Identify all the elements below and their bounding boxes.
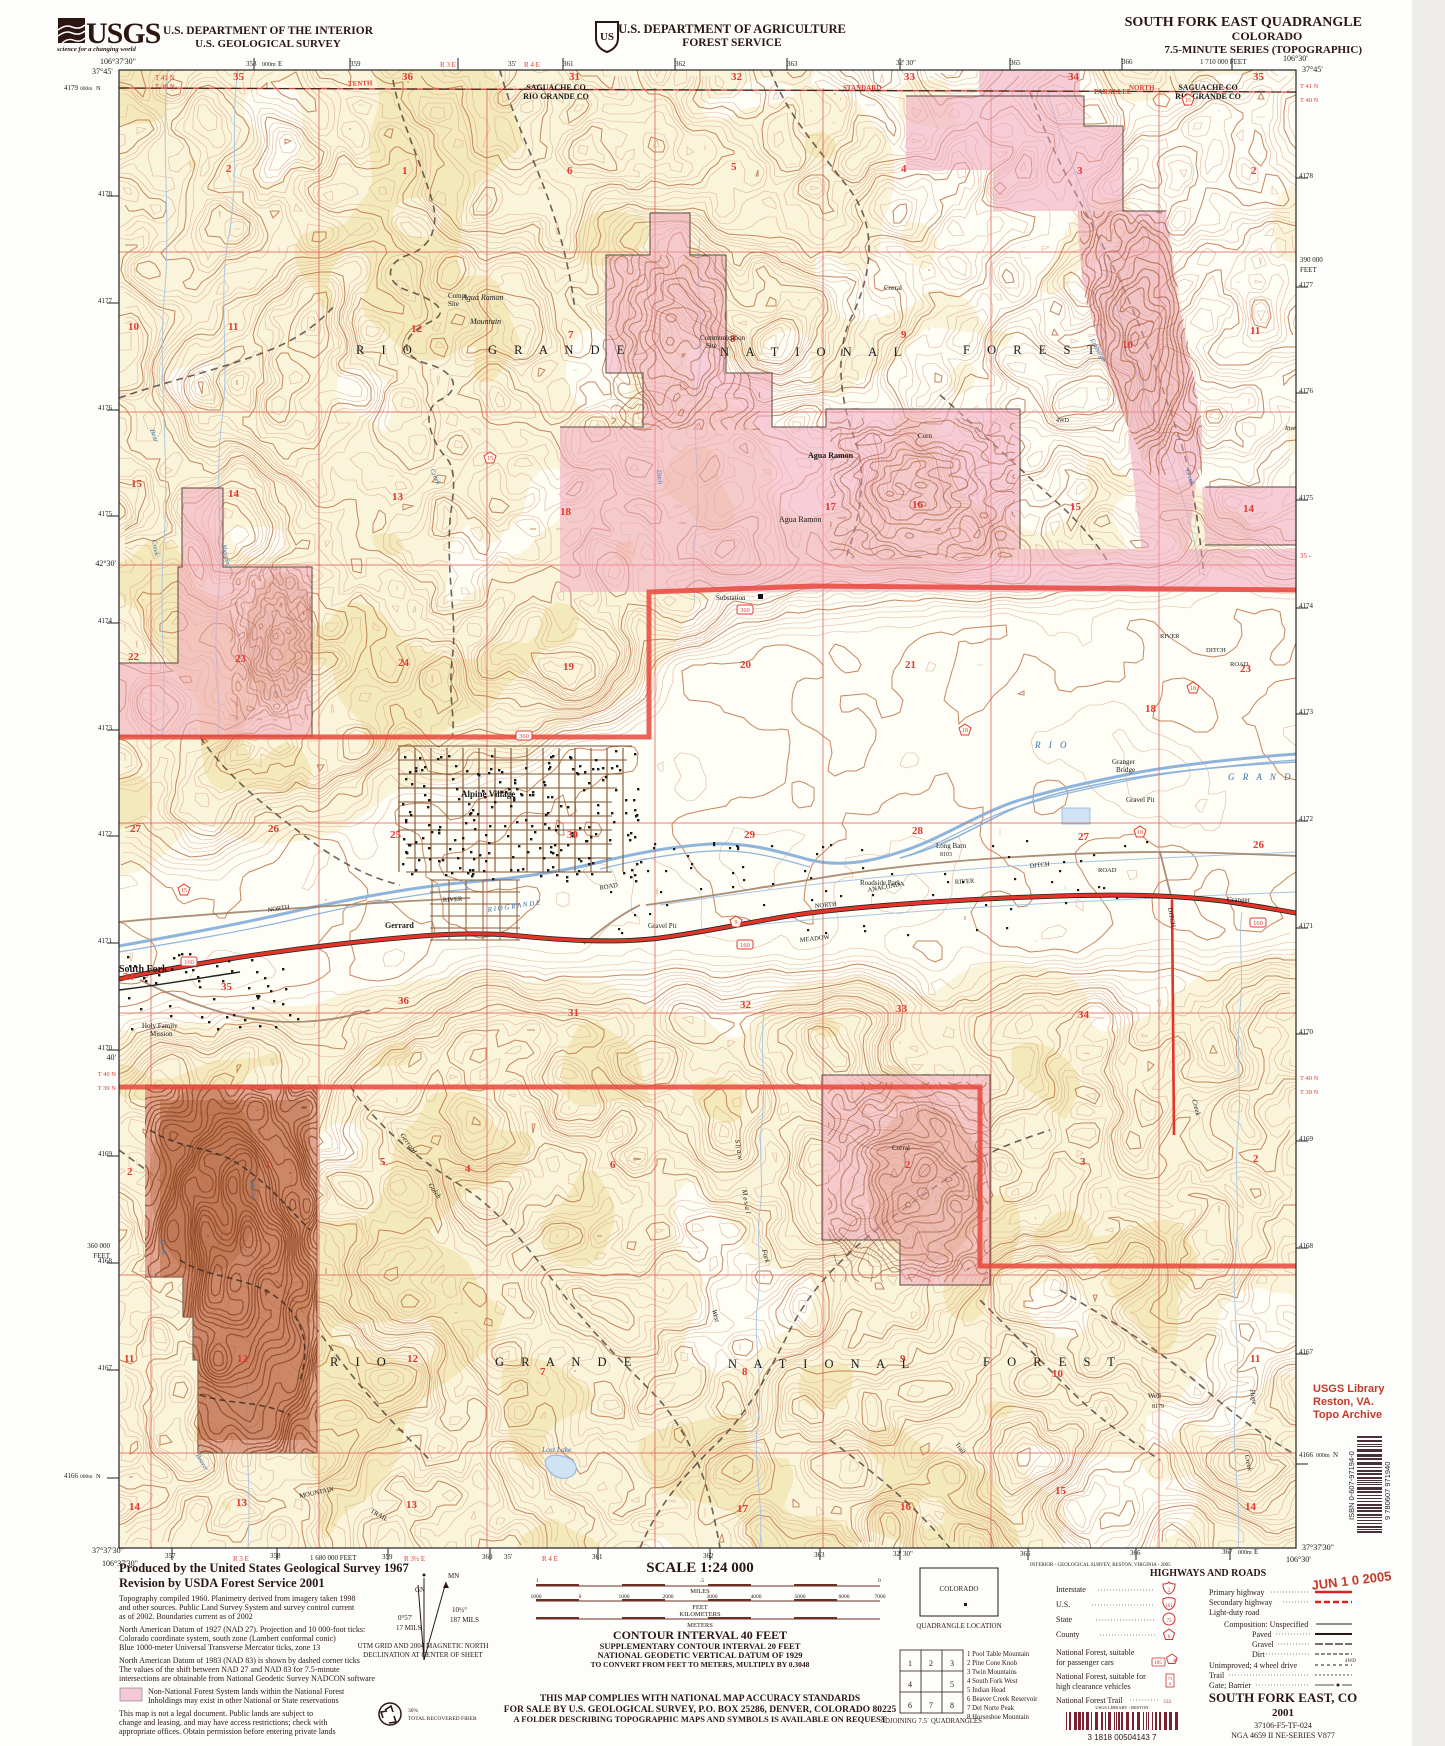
- svg-text:4175: 4175: [1299, 494, 1314, 502]
- svg-text:3 1818 00504143 7: 3 1818 00504143 7: [1088, 1733, 1158, 1742]
- svg-text:National Forest, suitable for: National Forest, suitable for: [1056, 1672, 1146, 1681]
- svg-text:25: 25: [390, 829, 402, 841]
- svg-text:DITCH: DITCH: [1206, 647, 1226, 654]
- svg-text:MN: MN: [448, 1572, 459, 1580]
- svg-text:Topo Archive: Topo Archive: [1313, 1409, 1382, 1421]
- svg-text:11: 11: [124, 1353, 134, 1365]
- svg-text:N: N: [1333, 1451, 1338, 1459]
- svg-text:RIVER: RIVER: [1160, 633, 1180, 640]
- svg-text:2: 2: [127, 1166, 133, 1178]
- svg-text:Reston, VA.: Reston, VA.: [1313, 1396, 1374, 1408]
- svg-text:ADJOINING 7.5´ QUADRANGLES: ADJOINING 7.5´ QUADRANGLES: [880, 1718, 982, 1725]
- svg-text:0°57': 0°57': [398, 1614, 413, 1622]
- svg-text:105: 105: [1154, 1661, 1162, 1666]
- svg-text:360: 360: [482, 1553, 493, 1561]
- svg-text:National Forest Trail: National Forest Trail: [1056, 1696, 1123, 1705]
- svg-text:5000: 5000: [795, 1594, 806, 1600]
- svg-text:48: 48: [1173, 1659, 1179, 1664]
- svg-text:R I O: R I O: [330, 1355, 393, 1369]
- svg-text:19: 19: [563, 661, 575, 673]
- svg-text:11: 11: [1250, 325, 1260, 337]
- svg-text:12: 12: [411, 323, 423, 335]
- svg-text:Mountain: Mountain: [469, 317, 501, 326]
- svg-text:N A T I O N A L: N A T I O N A L: [720, 345, 908, 359]
- svg-text:E: E: [278, 60, 282, 68]
- svg-text:Secondary highway: Secondary highway: [1209, 1598, 1272, 1607]
- svg-text:35': 35': [508, 60, 516, 68]
- svg-text:TOTAL RECOVERED FIBER: TOTAL RECOVERED FIBER: [408, 1716, 477, 1722]
- svg-text:QUADRANGLE LOCATION: QUADRANGLE LOCATION: [916, 1622, 1001, 1630]
- svg-text:358: 358: [246, 60, 257, 68]
- svg-text:4171: 4171: [1299, 922, 1314, 930]
- svg-text:10½°: 10½°: [452, 1606, 467, 1614]
- svg-text:Inholdings may exist in other: Inholdings may exist in other National o…: [148, 1696, 339, 1705]
- svg-text:29: 29: [744, 829, 756, 841]
- svg-text:390 000: 390 000: [1300, 256, 1323, 264]
- svg-text:FEET: FEET: [692, 1604, 708, 1611]
- svg-text:4000: 4000: [751, 1594, 762, 1600]
- svg-text:E: E: [1254, 1548, 1258, 1556]
- svg-text:CONTOUR INTERVAL 40 FEET: CONTOUR INTERVAL 40 FEET: [613, 1628, 787, 1642]
- svg-text:3: 3: [1077, 165, 1083, 177]
- svg-text:HIGHWAYS AND ROADS: HIGHWAYS AND ROADS: [1150, 1568, 1267, 1579]
- svg-text:4: 4: [908, 1680, 912, 1689]
- svg-text:17: 17: [825, 501, 837, 513]
- svg-text:Gravel Pit: Gravel Pit: [648, 922, 677, 930]
- svg-text:Lost Lake: Lost Lake: [541, 1445, 572, 1454]
- svg-text:Gerrard: Gerrard: [385, 921, 414, 930]
- svg-text:9: 9: [901, 329, 907, 341]
- svg-text:science for a changing world: science for a changing world: [56, 46, 136, 53]
- svg-text:4172: 4172: [98, 830, 113, 838]
- svg-text:7: 7: [929, 1701, 933, 1710]
- svg-text:10: 10: [1052, 1368, 1064, 1380]
- svg-text:4179: 4179: [64, 84, 79, 92]
- svg-text:35: 35: [1253, 71, 1265, 83]
- svg-text:11: 11: [228, 321, 238, 333]
- svg-text:4167: 4167: [1299, 1348, 1314, 1356]
- svg-text:32' 30": 32' 30": [896, 59, 916, 67]
- svg-text:Agua Ramon: Agua Ramon: [808, 451, 854, 460]
- svg-text:COLORADO: COLORADO: [1232, 29, 1303, 43]
- svg-text:12: 12: [407, 1353, 419, 1365]
- svg-text:26: 26: [268, 823, 280, 835]
- svg-text:ROAD: ROAD: [1230, 661, 1249, 668]
- svg-text:U.S. DEPARTMENT OF AGRICULTURE: U.S. DEPARTMENT OF AGRICULTURE: [618, 22, 846, 36]
- svg-text:change and leasing, and may ha: change and leasing, and may have access …: [119, 1718, 327, 1727]
- svg-text:000m: 000m: [1238, 1550, 1252, 1556]
- svg-text:1 710 000 FEET: 1 710 000 FEET: [1200, 58, 1247, 66]
- svg-text:27: 27: [130, 823, 142, 835]
- svg-text:18: 18: [962, 728, 968, 734]
- svg-text:COLORADO: COLORADO: [940, 1585, 979, 1593]
- svg-text:NATIONAL GEODETIC VERTICAL DAT: NATIONAL GEODETIC VERTICAL DATUM OF 1929: [597, 1650, 802, 1660]
- svg-text:11: 11: [1250, 1353, 1260, 1365]
- svg-text:G R A N D E: G R A N D E: [488, 343, 631, 357]
- svg-text:4175: 4175: [98, 510, 113, 518]
- svg-text:37°45': 37°45': [1302, 65, 1323, 74]
- svg-text:32' 30": 32' 30": [893, 1550, 913, 1558]
- svg-text:15: 15: [487, 456, 493, 462]
- svg-text:USGS LIBRARY - RESTON: USGS LIBRARY - RESTON: [1095, 1705, 1149, 1710]
- svg-text:2000: 2000: [663, 1594, 674, 1600]
- svg-text:Topography compiled 1960. Pla: Topography compiled 1960. Planimetry der…: [119, 1594, 356, 1603]
- svg-text:Granger: Granger: [1227, 896, 1251, 904]
- svg-text:365: 365: [1020, 1550, 1031, 1558]
- svg-text:332: 332: [1163, 1699, 1172, 1705]
- svg-text:4177: 4177: [1299, 281, 1314, 289]
- svg-text:N: N: [96, 85, 101, 92]
- svg-text:14: 14: [228, 488, 240, 500]
- svg-text:2: 2: [929, 1659, 933, 1668]
- svg-text:Holy Family: Holy Family: [142, 1022, 178, 1030]
- svg-text:359: 359: [350, 60, 361, 68]
- svg-text:FEET: FEET: [1300, 266, 1317, 274]
- svg-text:1 Pool Table Mountain: 1 Pool Table Mountain: [967, 1651, 1030, 1658]
- svg-text:Dirt: Dirt: [1252, 1650, 1266, 1659]
- svg-text:high clearance vehicles: high clearance vehicles: [1056, 1682, 1131, 1691]
- svg-text:Substation: Substation: [716, 594, 746, 602]
- svg-text:Gravel Pit: Gravel Pit: [1126, 796, 1155, 804]
- svg-text:N A T I O N A L: N A T I O N A L: [728, 1357, 916, 1371]
- svg-text:2: 2: [1251, 165, 1257, 177]
- svg-text:SOUTH FORK EAST, CO: SOUTH FORK EAST, CO: [1209, 1690, 1358, 1705]
- svg-text:365: 365: [1010, 59, 1021, 67]
- svg-text:County: County: [1056, 1630, 1080, 1639]
- svg-text:36: 36: [398, 995, 410, 1007]
- svg-text:42°30': 42°30': [95, 559, 116, 568]
- svg-text:360: 360: [740, 607, 750, 614]
- svg-text:T 40 N: T 40 N: [1300, 1075, 1319, 1082]
- svg-text:This map is not a legal docume: This map is not a legal document. Public…: [119, 1709, 313, 1718]
- svg-text:000m: 000m: [80, 86, 93, 92]
- svg-text:R I O: R I O: [1034, 740, 1070, 750]
- svg-text:ROAD: ROAD: [1098, 867, 1117, 874]
- svg-text:R 4 E: R 4 E: [542, 1555, 558, 1563]
- svg-text:4170: 4170: [98, 1044, 113, 1052]
- svg-text:The values of the shift betwee: The values of the shift between NAD 27 a…: [119, 1665, 340, 1674]
- svg-text:Alpine Village: Alpine Village: [461, 789, 515, 799]
- svg-text:7000: 7000: [875, 1594, 886, 1600]
- svg-text:Well: Well: [1148, 1392, 1161, 1400]
- svg-text:Corn: Corn: [918, 432, 933, 440]
- svg-text:9: 9: [735, 920, 738, 926]
- svg-text:35': 35': [504, 1553, 512, 1561]
- svg-text:for passenger cars: for passenger cars: [1056, 1658, 1114, 1667]
- svg-text:4166: 4166: [64, 1472, 79, 1480]
- svg-text:13: 13: [236, 1497, 248, 1509]
- svg-text:GN: GN: [415, 1586, 425, 1594]
- svg-text:5 Indian Head: 5 Indian Head: [967, 1687, 1006, 1694]
- svg-text:18: 18: [1145, 703, 1157, 715]
- svg-text:4178: 4178: [1299, 172, 1314, 180]
- svg-text:RIVER: RIVER: [955, 878, 976, 886]
- svg-text:DECLINATION AT CENTER OF SHEET: DECLINATION AT CENTER OF SHEET: [363, 1651, 483, 1659]
- svg-text:Produced by the United States: Produced by the United States Geological…: [119, 1561, 409, 1575]
- svg-text:T 40 N: T 40 N: [1300, 97, 1319, 104]
- svg-text:.5: .5: [700, 1578, 704, 1584]
- svg-text:NORTH: NORTH: [1129, 84, 1155, 92]
- svg-text:2: 2: [226, 163, 232, 175]
- svg-text:ISBN 0-607-97194-0: ISBN 0-607-97194-0: [1347, 1451, 1356, 1520]
- svg-text:R 3 E: R 3 E: [440, 61, 456, 69]
- svg-text:15: 15: [131, 478, 143, 490]
- svg-text:RIO GRANDE CO: RIO GRANDE CO: [523, 92, 589, 101]
- svg-text:0: 0: [579, 1594, 582, 1600]
- svg-text:14: 14: [1243, 503, 1255, 515]
- svg-text:F O R E S T: F O R E S T: [983, 1355, 1122, 1369]
- svg-text:Site: Site: [706, 342, 717, 350]
- svg-text:N: N: [96, 1473, 101, 1480]
- svg-text:FOREST SERVICE: FOREST SERVICE: [682, 37, 782, 49]
- svg-text:South Fork: South Fork: [119, 964, 168, 975]
- svg-text:8103: 8103: [940, 852, 952, 858]
- svg-text:35 -: 35 -: [1300, 552, 1312, 560]
- svg-text:6: 6: [610, 1159, 616, 1171]
- svg-text:4168: 4168: [1299, 1242, 1314, 1250]
- svg-text:4WD: 4WD: [1056, 418, 1070, 424]
- svg-text:2001: 2001: [1272, 1707, 1294, 1719]
- svg-text:000m: 000m: [1316, 1453, 1330, 1459]
- svg-text:SOUTH FORK EAST QUADRANGLE: SOUTH FORK EAST QUADRANGLE: [1125, 15, 1362, 30]
- svg-text:363: 363: [787, 60, 798, 68]
- svg-text:6: 6: [908, 1701, 912, 1710]
- svg-text:15: 15: [181, 888, 187, 894]
- svg-text:TO CONVERT FROM FEET TO METERS: TO CONVERT FROM FEET TO METERS, MULTIPLY…: [591, 1660, 810, 1669]
- svg-text:KILOMETERS: KILOMETERS: [679, 1611, 721, 1618]
- svg-text:37°37'30": 37°37'30": [1302, 1543, 1334, 1552]
- svg-text:362: 362: [703, 1552, 714, 1560]
- svg-text:27: 27: [1078, 831, 1090, 843]
- svg-text:106°37'30": 106°37'30": [100, 57, 136, 66]
- svg-text:8179: 8179: [1152, 1404, 1164, 1410]
- svg-text:Corral: Corral: [884, 284, 902, 292]
- svg-text:Granger: Granger: [1112, 758, 1136, 766]
- svg-text:10: 10: [128, 321, 140, 333]
- svg-text:28: 28: [912, 825, 924, 837]
- svg-text:T 40 N: T 40 N: [155, 83, 175, 91]
- svg-text:6 Beaver Creek Reservoir: 6 Beaver Creek Reservoir: [967, 1696, 1038, 1703]
- svg-text:14: 14: [1245, 1501, 1257, 1513]
- svg-text:4173: 4173: [98, 724, 113, 732]
- svg-text:15: 15: [1070, 501, 1082, 513]
- svg-text:2 Pine Cone Knob: 2 Pine Cone Knob: [967, 1660, 1018, 1667]
- svg-text:1: 1: [908, 1659, 912, 1668]
- svg-text:23: 23: [235, 653, 247, 665]
- svg-text:160: 160: [184, 959, 194, 966]
- svg-text:4: 4: [465, 1163, 471, 1175]
- svg-text:Composition: Unspecified: Composition: Unspecified: [1224, 1620, 1308, 1629]
- svg-text:A FOLDER DESCRIBING TOPOGRAPHI: A FOLDER DESCRIBING TOPOGRAPHIC MAPS AND…: [514, 1714, 887, 1724]
- svg-text:20: 20: [740, 659, 752, 671]
- svg-text:26: 26: [1253, 839, 1265, 851]
- svg-text:UTM GRID AND 2004 MAGNETIC NOR: UTM GRID AND 2004 MAGNETIC NORTH: [358, 1642, 489, 1650]
- svg-text:101: 101: [1165, 1604, 1173, 1609]
- svg-text:366: 366: [1122, 58, 1133, 66]
- svg-text:160: 160: [1253, 920, 1263, 927]
- svg-text:4 South Fork West: 4 South Fork West: [967, 1678, 1018, 1685]
- svg-text:National Forest, suitable: National Forest, suitable: [1056, 1648, 1135, 1657]
- svg-text:0: 0: [878, 1578, 881, 1584]
- svg-text:16: 16: [900, 1501, 912, 1513]
- svg-text:4172: 4172: [1299, 815, 1314, 823]
- svg-text:357: 357: [165, 1552, 176, 1560]
- svg-text:4177: 4177: [98, 297, 113, 305]
- svg-text:4167: 4167: [98, 1364, 113, 1372]
- svg-text:34: 34: [1068, 71, 1080, 83]
- svg-text:as of 2002. Boundaries curren: as of 2002. Boundaries current as of 200…: [119, 1612, 253, 1621]
- svg-text:2: 2: [905, 1159, 911, 1171]
- svg-text:362: 362: [675, 60, 686, 68]
- svg-text:PARALLEL: PARALLEL: [1094, 88, 1132, 96]
- svg-text:Gravel: Gravel: [1252, 1640, 1275, 1649]
- svg-text:and other sources. Public Lan: and other sources. Public Land Survey Sy…: [119, 1603, 355, 1612]
- svg-text:Paved: Paved: [1252, 1630, 1272, 1639]
- svg-text:Trail: Trail: [1209, 1671, 1225, 1680]
- svg-text:1000: 1000: [619, 1594, 630, 1600]
- svg-text:5: 5: [380, 1156, 386, 1168]
- svg-text:37°45': 37°45': [92, 67, 113, 76]
- svg-text:4176: 4176: [98, 404, 113, 412]
- svg-text:Agua Ramon: Agua Ramon: [779, 515, 821, 524]
- svg-text:36: 36: [402, 71, 414, 83]
- svg-text:North American Datum of 1927 (: North American Datum of 1927 (NAD 27). P…: [119, 1625, 365, 1634]
- svg-text:16: 16: [912, 499, 924, 511]
- svg-text:THIS MAP COMPLIES WITH NATIONA: THIS MAP COMPLIES WITH NATIONAL MAP ACCU…: [540, 1694, 860, 1704]
- svg-text:3: 3: [950, 1659, 954, 1668]
- svg-text:STANDARD: STANDARD: [843, 84, 881, 92]
- svg-text:Site: Site: [448, 300, 459, 308]
- svg-text:7.5-MINUTE SERIES (TOPOGRAPHIC: 7.5-MINUTE SERIES (TOPOGRAPHIC): [1164, 44, 1362, 56]
- svg-text:R I O: R I O: [356, 343, 419, 357]
- svg-text:160: 160: [740, 942, 750, 949]
- svg-text:4173: 4173: [1299, 708, 1314, 716]
- svg-text:7 Del Norte Peak: 7 Del Norte Peak: [967, 1705, 1015, 1712]
- svg-text:4174: 4174: [1299, 602, 1314, 610]
- svg-text:15: 15: [1185, 98, 1191, 104]
- svg-text:USGS Library: USGS Library: [1313, 1383, 1385, 1395]
- svg-text:RIVER: RIVER: [443, 896, 464, 904]
- svg-text:F O R E S T: F O R E S T: [963, 343, 1102, 357]
- svg-text:35: 35: [221, 981, 233, 993]
- svg-text:6000: 6000: [839, 1594, 850, 1600]
- svg-text:3000: 3000: [707, 1594, 718, 1600]
- svg-text:18: 18: [1190, 686, 1196, 692]
- svg-text:33: 33: [896, 1003, 908, 1015]
- svg-text:4174: 4174: [98, 617, 113, 625]
- svg-text:6: 6: [567, 165, 573, 177]
- svg-text:1: 1: [536, 1578, 539, 1584]
- svg-text:40': 40': [107, 1053, 117, 1062]
- svg-text:3 Twin Mountains: 3 Twin Mountains: [967, 1669, 1017, 1676]
- svg-text:32: 32: [740, 999, 752, 1011]
- svg-text:G R A N D E: G R A N D E: [495, 1355, 638, 1369]
- svg-text:5: 5: [950, 1680, 954, 1689]
- svg-text:Unimproved; 4 wheel drive: Unimproved; 4 wheel drive: [1209, 1661, 1298, 1670]
- svg-text:Light-duty road: Light-duty road: [1209, 1608, 1259, 1617]
- svg-text:17 MILS: 17 MILS: [396, 1624, 422, 1632]
- svg-text:9 780607 971940: 9 780607 971940: [1383, 1462, 1392, 1520]
- svg-text:U.S. DEPARTMENT OF THE INTERIO: U.S. DEPARTMENT OF THE INTERIOR: [163, 25, 374, 37]
- svg-text:1000: 1000: [531, 1594, 542, 1600]
- svg-text:TENTH: TENTH: [348, 79, 373, 88]
- svg-text:NGA 4659 II NE-SERIES V877: NGA 4659 II NE-SERIES V877: [1231, 1731, 1335, 1740]
- svg-text:4: 4: [901, 163, 907, 175]
- svg-text:T 39 N: T 39 N: [1300, 1089, 1319, 1096]
- svg-text:34: 34: [1078, 1009, 1090, 1021]
- svg-text:U.S.: U.S.: [1056, 1600, 1070, 1609]
- svg-text:T 40 N: T 40 N: [98, 1071, 117, 1078]
- svg-text:21: 21: [905, 659, 916, 671]
- svg-text:31: 31: [569, 71, 580, 83]
- svg-text:17: 17: [737, 1503, 749, 1515]
- svg-text:Corral: Corral: [892, 1144, 910, 1152]
- svg-text:Non-National Forest System lan: Non-National Forest System lands within …: [148, 1687, 345, 1696]
- svg-text:intersections are obtainable f: intersections are obtainable from Nation…: [119, 1674, 375, 1683]
- svg-text:4169: 4169: [98, 1150, 113, 1158]
- svg-text:Mission: Mission: [150, 1030, 173, 1038]
- svg-text:U.S. GEOLOGICAL SURVEY: U.S. GEOLOGICAL SURVEY: [195, 38, 341, 50]
- svg-text:State: State: [1056, 1615, 1072, 1624]
- svg-text:4WD: 4WD: [1345, 1659, 1356, 1664]
- svg-text:appropriate offices. Obtain p: appropriate offices. Obtain permission b…: [119, 1727, 336, 1736]
- svg-text:T 41 N: T 41 N: [155, 74, 175, 82]
- svg-text:4169: 4169: [1299, 1135, 1314, 1143]
- svg-text:SAGUACHE CO: SAGUACHE CO: [1178, 83, 1237, 92]
- svg-text:FEET: FEET: [93, 1252, 110, 1260]
- svg-text:SAGUACHE CO: SAGUACHE CO: [526, 83, 585, 92]
- svg-text:10: 10: [1122, 339, 1134, 351]
- svg-text:37°37'30": 37°37'30": [92, 1546, 124, 1555]
- svg-text:187 MILS: 187 MILS: [450, 1616, 479, 1624]
- svg-text:Agua Ramon: Agua Ramon: [461, 293, 504, 302]
- svg-text:360 000: 360 000: [87, 1242, 110, 1250]
- svg-text:Long Barn: Long Barn: [936, 842, 967, 850]
- svg-text:24: 24: [398, 657, 410, 669]
- svg-text:Revision by USDA Forest Servic: Revision by USDA Forest Service 2001: [119, 1576, 325, 1590]
- svg-text:2: 2: [1253, 1153, 1259, 1165]
- svg-text:SCALE 1:24 000: SCALE 1:24 000: [646, 1560, 754, 1576]
- svg-text:360: 360: [519, 733, 529, 740]
- svg-text:13: 13: [392, 491, 404, 503]
- svg-text:30%: 30%: [408, 1708, 419, 1714]
- svg-text:000m: 000m: [80, 1474, 93, 1480]
- svg-text:106°30': 106°30': [1286, 1555, 1311, 1564]
- svg-text:33: 33: [904, 71, 916, 83]
- svg-text:358: 358: [270, 1552, 281, 1560]
- svg-text:75: 75: [1167, 1619, 1173, 1624]
- svg-text:18: 18: [560, 506, 572, 518]
- svg-text:Gate; Barrier: Gate; Barrier: [1209, 1681, 1251, 1690]
- svg-text:R 4 E: R 4 E: [524, 61, 540, 69]
- svg-text:5: 5: [731, 161, 737, 173]
- svg-text:000m: 000m: [262, 62, 276, 68]
- svg-text:4166: 4166: [1299, 1451, 1314, 1459]
- svg-text:18: 18: [1137, 830, 1143, 836]
- svg-text:15: 15: [1055, 1485, 1067, 1497]
- svg-text:Bridge: Bridge: [1116, 766, 1135, 774]
- svg-text:1: 1: [402, 165, 408, 177]
- svg-text:Colorado coordinate system, so: Colorado coordinate system, south zone (…: [119, 1634, 336, 1643]
- svg-text:Blue 1000-meter Universal Tran: Blue 1000-meter Universal Transverse Mer…: [119, 1643, 320, 1652]
- svg-text:4171: 4171: [98, 937, 113, 945]
- svg-text:31: 31: [568, 1007, 579, 1019]
- svg-text:3: 3: [1080, 1156, 1086, 1168]
- svg-text:37106-F5-TF-024: 37106-F5-TF-024: [1254, 1721, 1312, 1730]
- svg-text:8: 8: [950, 1701, 954, 1710]
- svg-text:361: 361: [563, 60, 574, 68]
- svg-text:North American Datum of 1983 (: North American Datum of 1983 (NAD 83) is…: [119, 1656, 360, 1665]
